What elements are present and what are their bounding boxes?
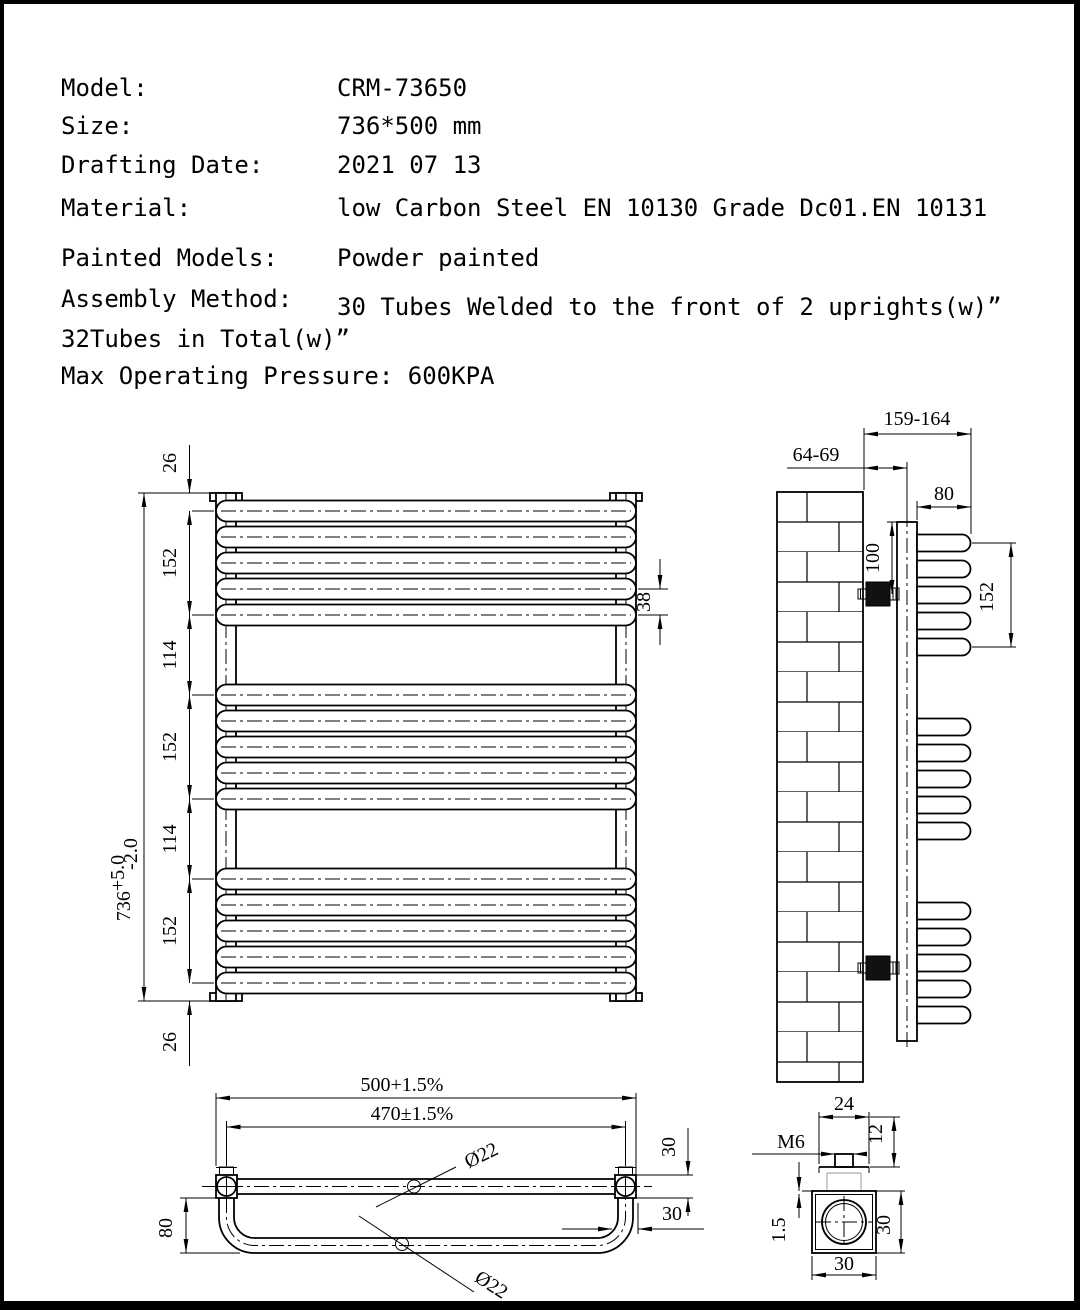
front-view: 736+5.0-2.0 26 152 114 1 [107, 445, 668, 1066]
dim-plan-tube-dia: Ø22 [461, 1138, 502, 1173]
dim-plan-loop-depth: 80 [155, 1218, 177, 1238]
dim-side-bracket-offset: 100 [862, 543, 884, 573]
plan-view: 500+1.5% 470±1.5% 80 30 [155, 1074, 704, 1304]
plan-upright-left [216, 1167, 237, 1198]
dim-side-wall-to-axis: 64-69 [793, 444, 840, 466]
dim-side-tube-depth: 80 [934, 483, 954, 505]
dim-front-group1: 152 [159, 548, 181, 578]
detail-geometry [802, 1154, 905, 1253]
dim-front-tube-pitch: 38 [633, 592, 655, 612]
dim-detail-wall-thickness: 1.5 [768, 1218, 790, 1243]
dim-front-group2: 152 [159, 732, 181, 762]
dim-side-wall-to-front: 159-164 [884, 408, 951, 430]
dim-side-group-span: 152 [976, 582, 998, 612]
dim-plan-upright-centres: 470±1.5% [371, 1103, 454, 1125]
upright-section-detail: 24 12 M6 1.5 30 [752, 1093, 905, 1280]
dim-front-gap1: 114 [159, 640, 181, 669]
dim-front-bottom-offset: 26 [159, 1032, 181, 1052]
wall-bracket-bottom [858, 956, 899, 980]
dim-front-group3: 152 [159, 916, 181, 946]
side-tube-rows [917, 535, 971, 1024]
dim-front-top-offset: 26 [159, 453, 181, 473]
technical-drawing: 736+5.0-2.0 26 152 114 1 [4, 4, 1080, 1310]
dim-front-gap2: 114 [159, 824, 181, 853]
wall-bracket-top [858, 582, 899, 606]
dim-plan-overall-width: 500+1.5% [361, 1074, 444, 1096]
brick-wall [777, 492, 863, 1082]
front-tube-rows [216, 501, 636, 994]
plan-upright-right [615, 1167, 636, 1198]
dim-plan-loop-offset: 30 [662, 1203, 682, 1225]
plan-return-loop [219, 1198, 633, 1253]
drawing-sheet: Model: CRM-73650 Size: 736*500 mm Drafti… [0, 0, 1080, 1310]
side-upright [897, 462, 917, 1049]
dim-detail-height: 30 [873, 1215, 895, 1235]
dim-plan-upright-depth: 30 [658, 1137, 680, 1157]
dim-plan-loop-tube-dia: Ø22 [471, 1266, 512, 1303]
side-view: 159-164 64-69 80 100 152 [777, 408, 1016, 1082]
dim-detail-thread: M6 [777, 1131, 805, 1153]
dim-detail-boss-height: 12 [865, 1124, 887, 1144]
dim-detail-boss-width: 24 [834, 1093, 854, 1115]
dim-detail-width: 30 [834, 1253, 854, 1275]
dim-front-overall: 736+5.0-2.0 [107, 838, 142, 921]
